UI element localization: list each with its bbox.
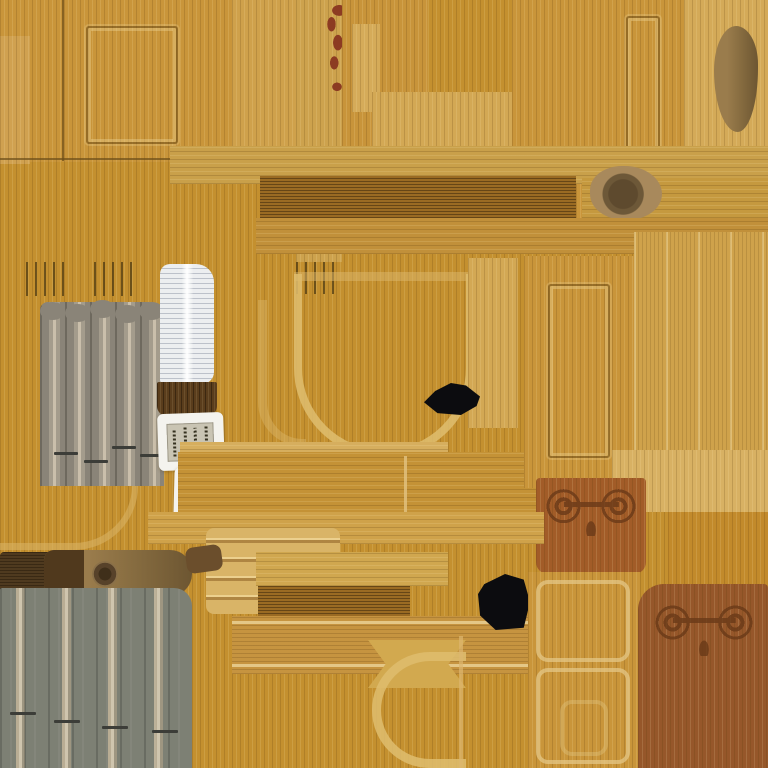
pale-divider <box>459 636 463 768</box>
tickmark-decoration <box>10 712 36 715</box>
texture-atlas-canvas <box>0 0 768 768</box>
bottom-right-ornament-panel <box>638 584 768 768</box>
tickmark-decoration <box>54 452 78 455</box>
log-small-piece <box>184 544 223 575</box>
bottom-mid-beam-a <box>256 552 448 586</box>
hinge-ticks-left <box>26 262 66 296</box>
scallops-decoration <box>40 302 65 320</box>
seat-u-outline <box>294 274 474 458</box>
mid-ornament-panel <box>536 478 646 574</box>
plank-separator-1 <box>404 456 407 518</box>
bottom-right-outline-upper <box>536 580 630 662</box>
tickmark-decoration <box>112 446 136 449</box>
tickmark-decoration <box>152 730 178 733</box>
book-page-stack <box>160 264 214 384</box>
tickmark-decoration <box>84 460 108 463</box>
oak-plank-block <box>668 512 768 590</box>
organ-pipes <box>40 302 164 486</box>
scrolls-decoration <box>648 602 760 656</box>
cabinet-door-inset-frame <box>86 26 178 144</box>
cabinet-door-left-stile <box>0 36 30 164</box>
tickmark-decoration <box>102 726 128 729</box>
bottom-right-outline-inner <box>560 700 608 756</box>
tickmark-decoration <box>54 720 80 723</box>
right-door-inset-frame <box>548 284 610 458</box>
beam-log-knot <box>590 166 662 220</box>
gray-wall-panel <box>0 588 192 768</box>
cabinet-door-seam-vertical <box>62 0 64 161</box>
scrolls-decoration <box>542 488 640 536</box>
hinge-ticks-mid <box>94 262 132 296</box>
book-cover-block <box>157 382 217 416</box>
middle-beam-dark <box>260 176 576 218</box>
knot-decoration <box>92 561 118 587</box>
top-right-slot-frame <box>626 16 660 162</box>
